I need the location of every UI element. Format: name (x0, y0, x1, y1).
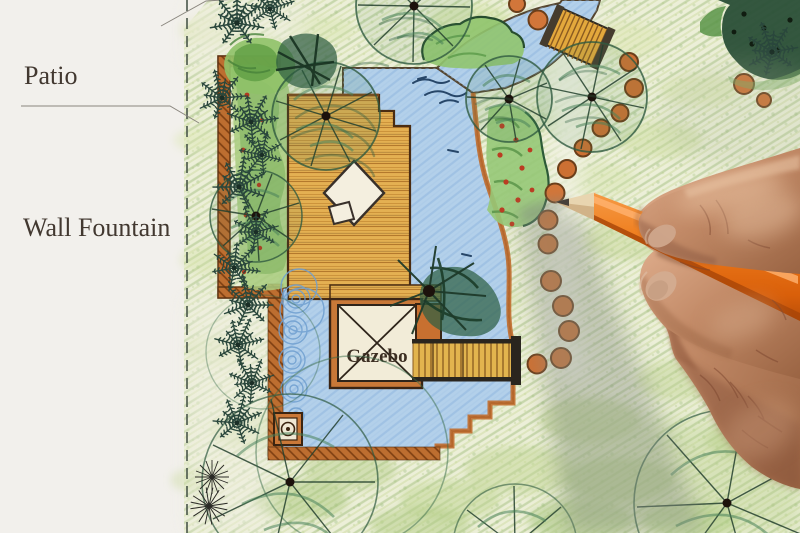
svg-text:Patio: Patio (24, 61, 77, 90)
svg-text:Wall Fountain: Wall Fountain (23, 213, 170, 242)
